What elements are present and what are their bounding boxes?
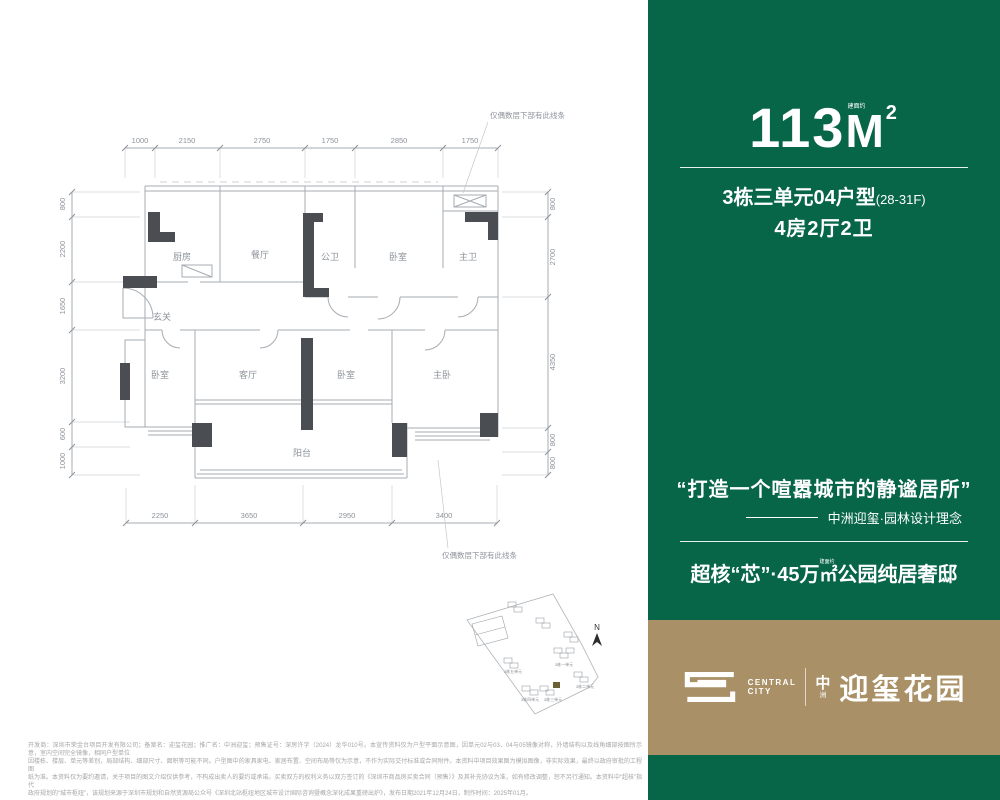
highlighted-unit [553,682,560,688]
dim-left: 800 [58,198,67,211]
floor-range: (28-31F) [876,192,926,207]
room-bedroom: 卧室 [151,369,169,380]
dim-left: 600 [58,428,67,441]
room-kitchen: 厨房 [173,251,191,262]
dim-left: 1650 [58,298,67,315]
room-bedroom: 卧室 [337,369,355,380]
site-labels: 3栋一单元 3栋二单元 3栋三单元 3栋四单元 3栋五单元 [504,661,594,702]
area-unit: M建面约2 [845,105,898,157]
room-entry: 玄关 [153,311,171,322]
site-label-unit5: 3栋五单元 [504,668,522,674]
info-panel: 113M建面约2 3栋三单元04户型(28-31F) 4房2厅2卫 “打造一个喧… [648,0,1000,800]
dim-left: 1000 [58,453,67,470]
disclaimer-block: 开发商：深圳市荣金台项目开发有限公司；备案名：迎玺花园；推广名：中洲迎玺；预售证… [28,742,642,798]
room-master-bath: 主卫 [459,251,477,262]
disclaimer-line: 政府规划的“城市枢纽”，该规划来源于深圳市规划和自然资源局公众号《深圳北站枢纽地… [28,790,642,798]
attribution-dash [746,517,818,518]
note-top: 仅偶数层下部有此线条 [490,110,565,120]
dim-top: 1750 [322,136,339,145]
north-arrow-icon [592,633,602,646]
dimension-numbers: 1000 2150 2750 1750 2850 1750 800 2200 1… [58,136,557,520]
quote-attribution: 中洲迎玺·园林设计理念 [746,508,962,527]
quote-text: “打造一个喧嚣城市的静谧居所” [648,473,1000,502]
unit-type-line: 3栋三单元04户型(28-31F) [648,181,1000,210]
dim-left: 3200 [58,368,67,385]
bottom-green-strip [648,755,1000,800]
brand-cn-small: 中 洲 [815,676,830,699]
room-master-bedroom: 主卧 [433,369,451,380]
dimension-extension-lines [72,148,548,523]
site-label-unit1: 3栋一单元 [555,661,573,667]
dim-right: 800 [548,434,557,447]
room-balcony: 阳台 [293,447,311,458]
divider-line [680,167,968,168]
room-dining: 餐厅 [251,249,269,260]
dim-top: 2850 [391,136,408,145]
site-label-unit3: 3栋三单元 [544,696,562,702]
logo-band: CENTRAL CITY 中 洲 迎玺花园 [648,620,1000,755]
floor-plan: 1000 2150 2750 1750 2850 1750 800 2200 1… [30,90,610,590]
divider-line [680,541,968,542]
dim-top: 2750 [254,136,271,145]
site-plan: 3栋一单元 3栋二单元 3栋三单元 3栋四单元 3栋五单元 N [450,592,625,732]
dimension-ticks [69,145,551,526]
disclaimer-line: 开发商：深圳市荣金台项目开发有限公司；备案名：迎玺花园；推广名：中洲迎玺；预售证… [28,742,642,758]
area-headline: 113M建面约2 [648,98,1000,158]
room-public-bath: 公卫 [321,252,339,262]
slogan-unit-note: 建面约 [819,558,834,565]
room-bedroom: 卧室 [389,251,407,262]
room-living: 客厅 [239,369,257,380]
dim-top: 1750 [462,136,479,145]
dim-right: 2700 [548,249,557,266]
disclaimer-line: 纸为准。本资料仅为要约邀请，关于项目的图文介绍仅供参考，不构成出卖人的要约或承诺… [28,774,642,790]
dim-top: 1000 [132,136,149,145]
slogan-line: 超核“芯”·45万建面约㎡公园纯居奢邸 [648,558,1000,587]
note-bottom: 仅偶数层下部有此线条 [442,550,517,560]
dim-bottom: 2950 [339,511,356,520]
brand-en: CENTRAL CITY [748,678,797,696]
area-tiny-note: 建面约 [847,101,865,110]
north-label: N [594,623,600,632]
room-count-line: 4房2厅2卫 [648,212,1000,241]
site-buildings [472,602,588,695]
dimension-lines [72,148,548,523]
dim-bottom: 3650 [241,511,258,520]
disclaimer-line: 因楼栋、楼层、单元等差别，局部结构、细部尺寸、面积等可能不同。户型图中的家具家电… [28,758,642,774]
dim-right: 4350 [548,354,557,371]
brand-logo: CENTRAL CITY 中 洲 迎玺花园 [648,666,1000,708]
brand-cn-big: 迎玺花园 [839,666,967,708]
central-city-s-logo-icon [681,670,739,704]
dim-left: 2200 [58,241,67,258]
dim-top: 2150 [179,136,196,145]
logo-divider [805,668,806,706]
area-number: 113 [749,96,845,159]
dim-right: 800 [548,198,557,211]
dim-bottom: 2250 [152,511,169,520]
structural-walls [120,212,498,457]
plan-annotations: 仅偶数层下部有此线条 仅偶数层下部有此线条 [438,110,565,560]
site-label-unit4: 3栋四单元 [521,696,539,702]
dim-right: 800 [548,457,557,470]
slogan-unit: 建面约㎡ [819,565,837,585]
site-boundary [467,594,598,714]
site-label-unit2: 3栋二单元 [576,683,594,689]
